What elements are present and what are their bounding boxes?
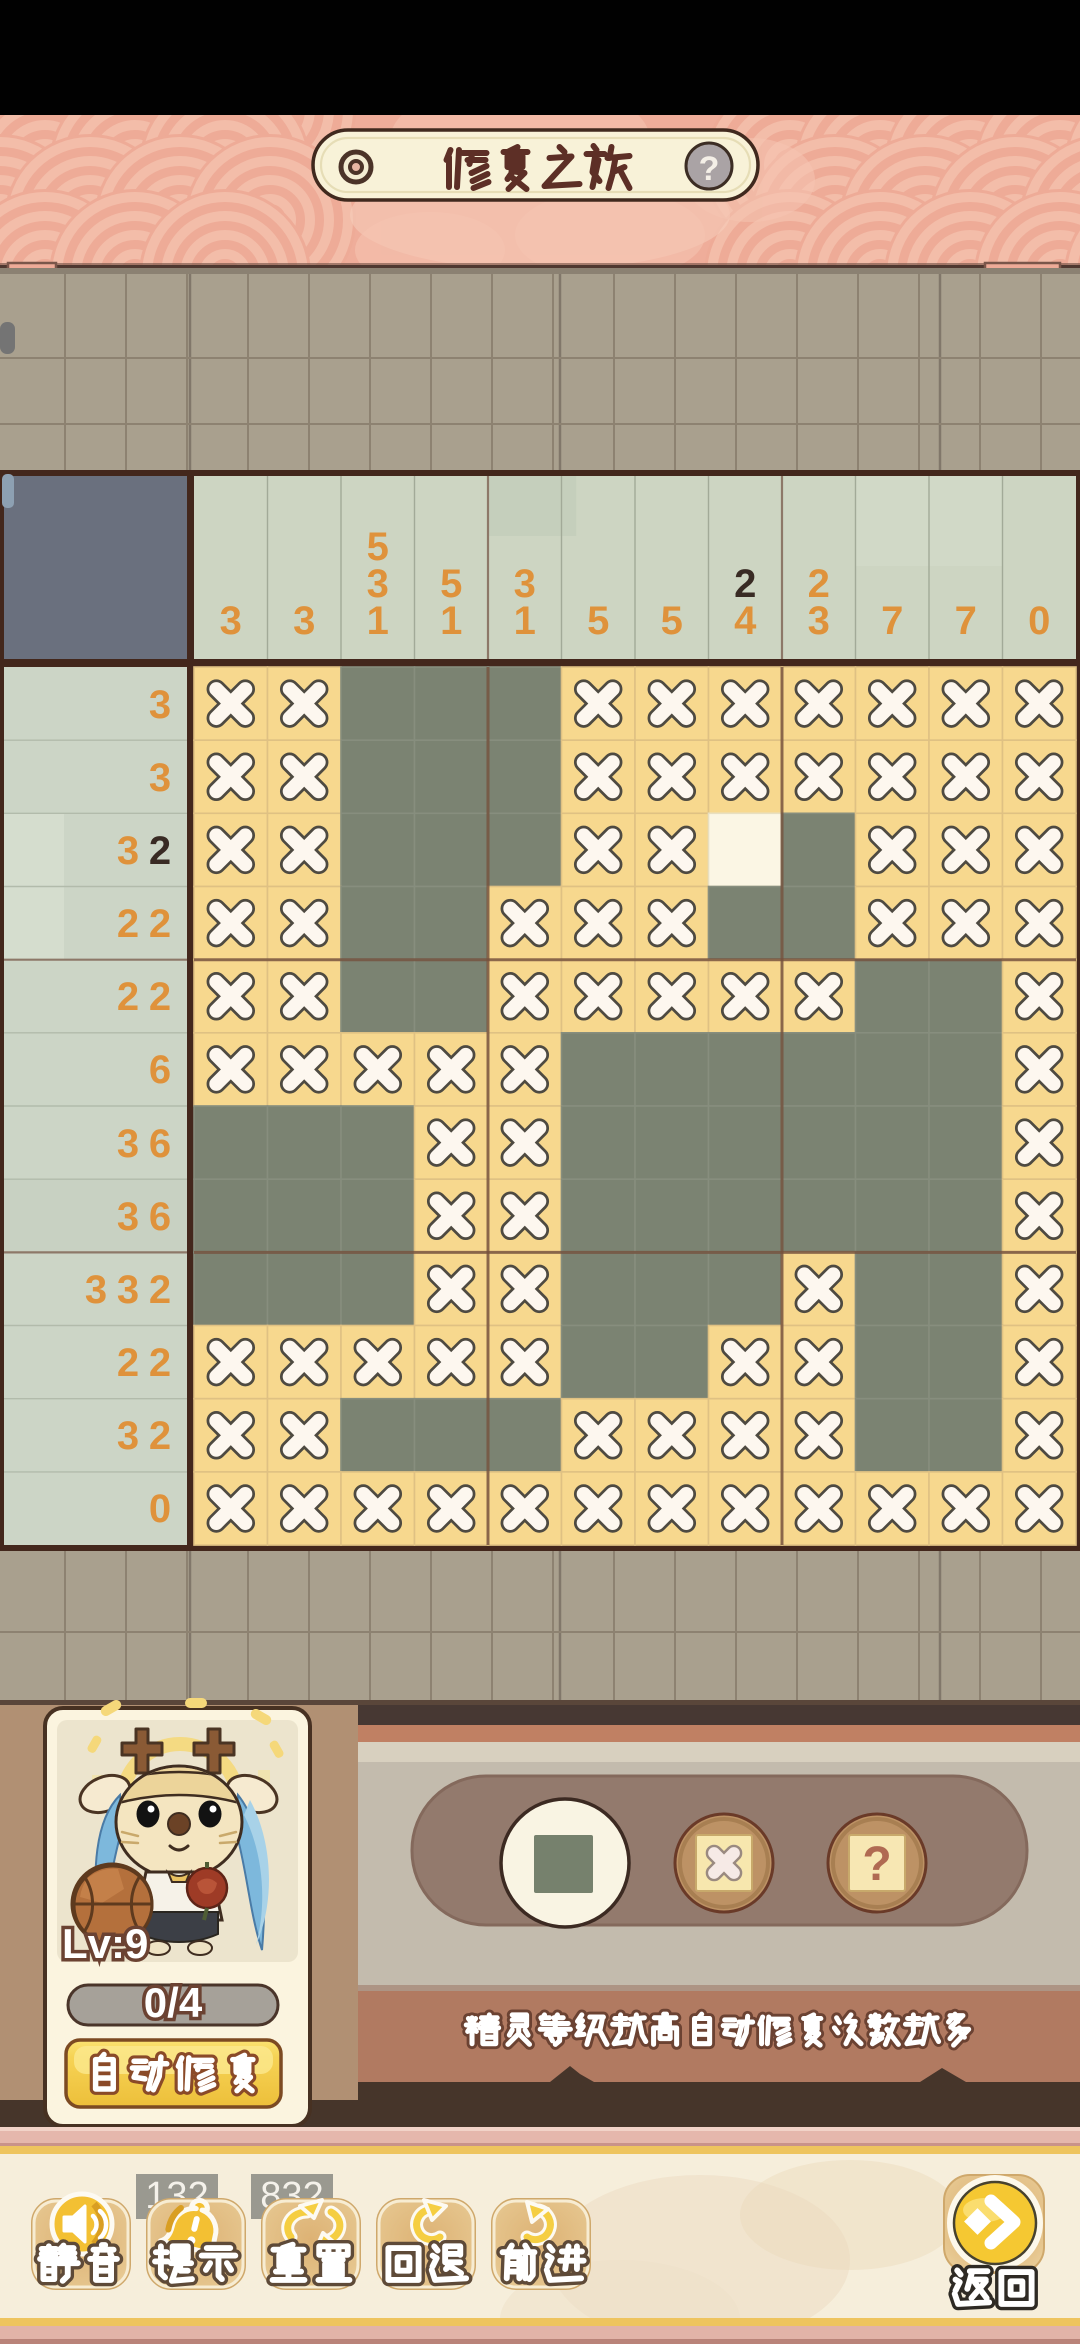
svg-text:3: 3: [117, 1414, 139, 1458]
svg-text:1: 1: [367, 599, 389, 643]
svg-text:3: 3: [808, 599, 830, 643]
svg-text:2: 2: [149, 829, 171, 873]
svg-text:6: 6: [149, 1195, 171, 1239]
svg-text:5: 5: [661, 599, 683, 643]
svg-text:0: 0: [149, 1487, 171, 1531]
svg-text:6: 6: [149, 1122, 171, 1166]
svg-text:2: 2: [149, 1414, 171, 1458]
svg-text:0/4: 0/4: [144, 1979, 203, 2026]
svg-text:3: 3: [149, 756, 171, 800]
svg-text:?: ?: [699, 150, 720, 188]
svg-text:3: 3: [149, 683, 171, 727]
svg-text:3: 3: [85, 1268, 107, 1312]
svg-text:4: 4: [734, 599, 757, 643]
svg-text:2: 2: [149, 1341, 171, 1385]
svg-text:2: 2: [117, 975, 139, 1019]
svg-text:7: 7: [955, 599, 977, 643]
svg-text:1: 1: [440, 599, 462, 643]
svg-text:2: 2: [117, 1341, 139, 1385]
svg-text:7: 7: [881, 599, 903, 643]
svg-text:3: 3: [117, 1122, 139, 1166]
svg-text:5: 5: [587, 599, 609, 643]
svg-text:3: 3: [117, 829, 139, 873]
svg-text:Lv:9: Lv:9: [62, 1920, 148, 1967]
svg-text:?: ?: [862, 1838, 891, 1891]
svg-text:2: 2: [149, 1268, 171, 1312]
svg-text:2: 2: [149, 975, 171, 1019]
svg-text:3: 3: [117, 1195, 139, 1239]
svg-text:3: 3: [220, 599, 242, 643]
svg-text:1: 1: [514, 599, 536, 643]
svg-text:3: 3: [293, 599, 315, 643]
svg-text:2: 2: [117, 902, 139, 946]
svg-text:2: 2: [149, 902, 171, 946]
svg-text:6: 6: [149, 1048, 171, 1092]
svg-text:3: 3: [117, 1268, 139, 1312]
svg-text:0: 0: [1028, 599, 1050, 643]
